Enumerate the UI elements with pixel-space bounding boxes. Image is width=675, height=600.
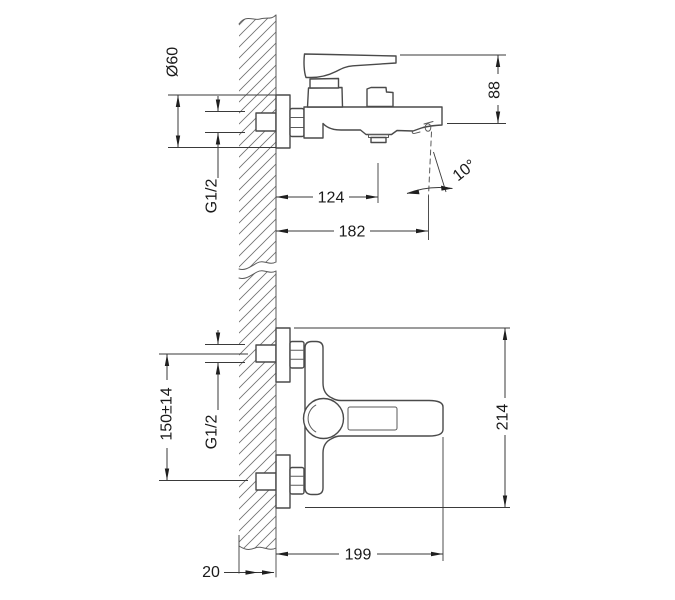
- faucet-plan-view: [256, 328, 443, 508]
- handle-neck-side: [310, 79, 339, 89]
- dim-label-body-height: 88: [487, 81, 504, 99]
- dim-label-inlet-thread-top: G1/2: [204, 179, 221, 214]
- wall-section-lower: [239, 271, 276, 577]
- dim-label-wall-to-spout-tip: 182: [339, 224, 366, 241]
- dim-label-escutcheon-diameter: Ø60: [165, 47, 182, 77]
- faucet-side-view: [256, 54, 453, 240]
- dim-label-overall-span: 214: [495, 404, 512, 431]
- inlet-stub-bottom: [256, 473, 276, 490]
- handle-lever-side: [304, 54, 396, 78]
- dim-label-inlet-thread-bottom: G1/2: [204, 415, 221, 450]
- connection-nut-side: [290, 109, 304, 137]
- technical-drawing-canvas: Ø60 G1/2 124 182 88 10° 150±14 G1/2 214 …: [0, 0, 675, 600]
- dim-label-inlet-spacing: 150±14: [159, 387, 176, 440]
- diverter-knob-side: [367, 88, 393, 107]
- connection-nut-top: [290, 342, 304, 369]
- dim-label-wall-to-handle-end: 199: [345, 547, 372, 564]
- aerator-side: [369, 135, 389, 143]
- dim-label-spout-angle: 10°: [450, 157, 480, 185]
- wall-section-upper: [239, 15, 276, 270]
- escutcheon-top: [276, 328, 290, 382]
- handle-pivot-plan: [304, 399, 344, 439]
- faucet-body-side: [304, 107, 442, 138]
- inlet-stub-side: [256, 113, 276, 131]
- connection-nut-bottom: [290, 468, 304, 495]
- inlet-stub-top: [256, 345, 276, 362]
- dim-label-wall-thickness: 20: [202, 564, 220, 581]
- escutcheon-side: [276, 95, 290, 148]
- water-stream-reference: [407, 132, 453, 240]
- escutcheon-bottom: [276, 455, 290, 508]
- cartridge-housing-side: [308, 88, 343, 108]
- dim-wall-to-handle-end: [276, 437, 443, 561]
- faucet-dimension-drawing: Ø60 G1/2 124 182 88 10° 150±14 G1/2 214 …: [0, 0, 675, 600]
- dim-label-wall-to-aerator: 124: [318, 190, 345, 207]
